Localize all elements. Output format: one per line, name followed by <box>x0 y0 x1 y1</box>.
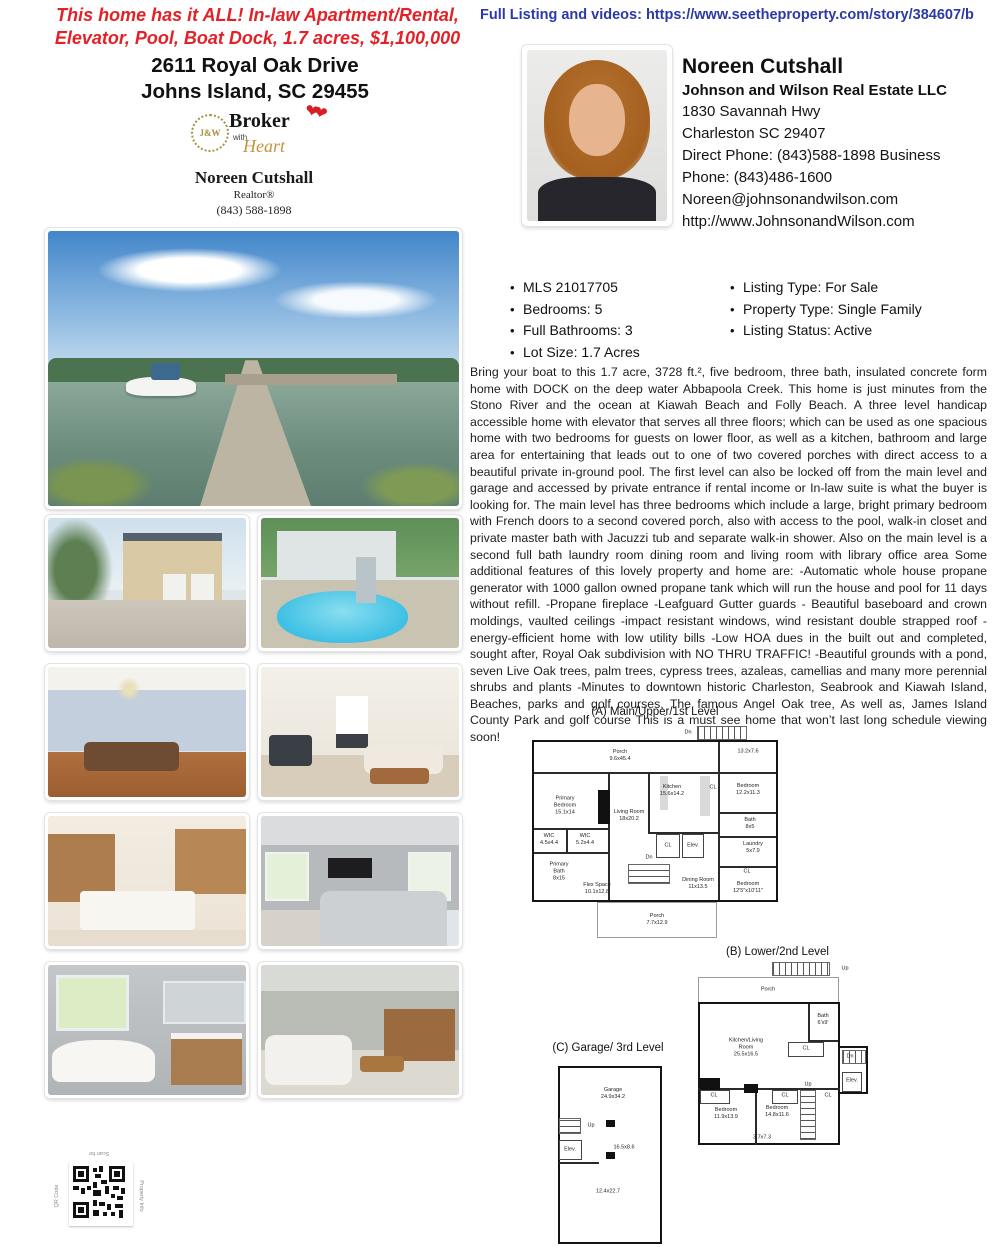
photo-frame <box>258 813 462 949</box>
photo-frame <box>45 962 249 1098</box>
island <box>80 891 195 930</box>
room-label: CL <box>710 1093 717 1100</box>
room-label: 16.5x8.6 <box>613 1145 634 1152</box>
room-label: Primary Bath 8x15 <box>550 862 569 883</box>
room-label: Dn <box>684 730 691 737</box>
mirror <box>163 981 246 1024</box>
agent-portrait <box>527 50 667 221</box>
garage-doors <box>163 574 214 600</box>
plan-wall <box>718 742 720 900</box>
room-label: CL <box>664 843 671 850</box>
room-label: Primary Bedroom 15.1x14 <box>554 796 576 817</box>
photo-frame <box>258 664 462 800</box>
bed <box>320 891 447 946</box>
floorplan-c-title: (C) Garage/ 3rd Level <box>538 1042 678 1054</box>
room-label: Porch 7.7x12.9 <box>646 913 667 927</box>
dock-platform <box>225 374 398 385</box>
stairs-icon <box>772 962 830 976</box>
plan-wall <box>648 774 650 832</box>
qr-caption-top: Scan for <box>89 1150 109 1156</box>
boat <box>126 377 196 396</box>
room-label: Kitchen 15.6x14.2 <box>660 784 684 798</box>
room-label: Bath 8x5 <box>744 817 755 831</box>
chimney-block <box>598 790 610 824</box>
photo-family-room <box>261 965 459 1095</box>
logo-agent-phone: (843) 588-1898 <box>185 203 323 218</box>
room-label: 12.4x22.7 <box>596 1189 620 1196</box>
plan-wall <box>718 812 776 814</box>
plan-wall <box>566 828 568 852</box>
detail-property-type: Property Type: Single Family <box>728 299 922 321</box>
broker-with-heart-logo: J&W Broker with Heart ❤❤ Noreen Cutshall… <box>185 106 323 226</box>
plan-wall <box>534 852 608 854</box>
room-label: Elev. <box>687 843 699 850</box>
logo-art: J&W Broker with Heart ❤❤ <box>185 106 323 164</box>
photo-bathroom <box>48 965 246 1095</box>
room-label: WIC 5.2x4.4 <box>576 833 594 847</box>
pool-slide <box>356 557 376 603</box>
window <box>265 852 309 900</box>
room-label: Laundry 5x7.9 <box>743 841 763 855</box>
address-line2: Johns Island, SC 29455 <box>45 79 465 105</box>
photo-living-room <box>261 667 459 797</box>
qr-block: Scan for QR Code Property Info <box>56 1148 142 1244</box>
stairs-icon <box>697 726 747 740</box>
room-label: Bedroom 12.2x11.3 <box>736 783 760 797</box>
details-list-left: MLS 21017705 Bedrooms: 5 Full Bathrooms:… <box>508 277 640 363</box>
photo-dining-room <box>48 667 246 797</box>
tv <box>328 858 372 879</box>
driveway <box>48 600 246 648</box>
stairs-icon <box>800 1090 816 1140</box>
room-label: Bath 6'x9' <box>817 1013 828 1027</box>
room-label: Living Room 18x20.2 <box>614 809 645 823</box>
room-label: Porch 9.6x45.4 <box>609 749 630 763</box>
detail-bedrooms: Bedrooms: 5 <box>508 299 640 321</box>
room-label: Dn <box>846 1054 853 1061</box>
cabinet-strip <box>700 776 710 816</box>
details-list-right: Listing Type: For Sale Property Type: Si… <box>728 277 922 342</box>
tagline-line1: This home has it ALL! In-law Apartment/R… <box>0 4 515 27</box>
ceiling <box>261 816 459 845</box>
window <box>56 975 129 1030</box>
plan-wall <box>534 772 776 774</box>
flyer-page: { "header": { "tagline_line1": "This hom… <box>0 0 1000 1250</box>
marsh-grass <box>360 462 459 506</box>
agent-email[interactable]: Noreen@johnsonandwilson.com <box>682 191 992 208</box>
face <box>569 84 625 156</box>
table <box>360 1056 404 1072</box>
stairs-icon <box>628 864 670 884</box>
detail-lot-size: Lot Size: 1.7 Acres <box>508 342 640 364</box>
plan-wall <box>808 1004 810 1040</box>
sectional-sofa <box>265 1035 352 1084</box>
room-label: Up <box>804 1082 811 1089</box>
agent-address2: Charleston SC 29407 <box>682 125 992 142</box>
kitchen-cabinets <box>384 1009 455 1061</box>
room-label: Bedroom 12'5"x10'11" <box>733 881 763 895</box>
jacuzzi-tub <box>52 1040 155 1082</box>
agent-address1: 1830 Savannah Hwy <box>682 103 992 120</box>
logo-heart-word: Heart <box>243 136 285 157</box>
agent-company: Johnson and Wilson Real Estate LLC <box>682 82 992 99</box>
photo-bedroom <box>261 816 459 946</box>
logo-broker-word: Broker <box>229 110 290 133</box>
laurel-monogram-icon: J&W <box>191 114 229 152</box>
qr-caption-left: QR Code <box>54 1185 60 1208</box>
room-label: Bedroom 14.8x11.6 <box>765 1105 789 1119</box>
room-label: 13.2x7.6 <box>737 749 758 756</box>
coffee-table <box>370 768 429 784</box>
ceiling <box>261 965 459 991</box>
room-label: WIC 4.5x4.4 <box>540 833 558 847</box>
photo-frame <box>45 515 249 651</box>
vanity <box>171 1033 242 1085</box>
address-line1: 2611 Royal Oak Drive <box>45 53 465 79</box>
cloud <box>274 281 438 320</box>
wood-cabinets <box>175 829 246 894</box>
room-label: Dn <box>645 855 652 862</box>
photo-frame-main <box>45 228 462 509</box>
agent-name: Noreen Cutshall <box>682 55 992 79</box>
floorplan-a-title: (A) Main/Upper/1st Level <box>530 706 780 718</box>
room-label: Elev. <box>564 1147 576 1154</box>
sofa-dark <box>269 735 313 766</box>
room-label: CL <box>802 1046 809 1053</box>
chandelier <box>117 677 141 700</box>
detail-listing-type: Listing Type: For Sale <box>728 277 922 299</box>
detail-listing-status: Listing Status: Active <box>728 320 922 342</box>
suit <box>538 177 656 221</box>
qr-code-icon <box>69 1162 133 1226</box>
room-label: 3.7x7.3 <box>753 1135 771 1142</box>
room-label: Bedroom 11.9x13.9 <box>714 1107 738 1121</box>
property-description: Bring your boat to this 1.7 acre, 3728 f… <box>470 364 987 746</box>
photo-dock-water <box>48 231 459 506</box>
dining-table <box>84 742 179 771</box>
ceiling <box>48 667 246 690</box>
agent-phone-business: Phone: (843)486-1600 <box>682 169 992 186</box>
floorplan-b-title: (B) Lower/2nd Level <box>690 946 865 958</box>
logo-agent-role: Realtor® <box>185 189 323 201</box>
post-block <box>606 1120 615 1127</box>
floor <box>261 910 320 946</box>
floor <box>48 930 246 946</box>
photo-pool <box>261 518 459 648</box>
agent-phone-direct: Direct Phone: (843)588-1898 Business <box>682 147 992 164</box>
plan-wall <box>718 866 776 868</box>
plan-wall <box>534 828 608 830</box>
room-label: CL <box>743 869 750 876</box>
stairs-icon <box>559 1118 581 1134</box>
agent-website[interactable]: http://www.JohnsonandWilson.com <box>682 213 992 230</box>
photo-frame <box>258 515 462 651</box>
wall-block <box>700 1078 720 1090</box>
tagline-line2: Elevator, Pool, Boat Dock, 1.7 acres, $1… <box>0 27 515 50</box>
photo-frame <box>45 813 249 949</box>
pool-water <box>277 591 408 643</box>
qr-code-svg <box>71 1164 127 1220</box>
qr-caption-right: Property Info <box>138 1180 144 1212</box>
plan-wall <box>559 1162 599 1164</box>
fireplace <box>336 696 368 748</box>
room-label: Elev. <box>846 1078 858 1085</box>
plan-wall <box>718 836 776 838</box>
agent-photo-frame <box>522 45 672 226</box>
room-label: Garage 24.9x34.2 <box>601 1087 625 1101</box>
photo-frame <box>258 962 462 1098</box>
room-label: Kitchen/Living Room 25.5x16.5 <box>729 1038 763 1059</box>
listing-url-link[interactable]: Full Listing and videos: https://www.see… <box>480 7 992 23</box>
detail-mls: MLS 21017705 <box>508 277 640 299</box>
property-address: 2611 Royal Oak Drive Johns Island, SC 29… <box>45 53 465 105</box>
room-label: Porch <box>761 987 775 994</box>
photo-house-exterior <box>48 518 246 648</box>
marsh-grass <box>48 457 155 507</box>
room-label: Flex Space 10.1x12.8 <box>583 882 611 896</box>
room-label: CL <box>781 1093 788 1100</box>
detail-bathrooms: Full Bathrooms: 3 <box>508 320 640 342</box>
room-label: Up <box>587 1123 594 1130</box>
cloud <box>97 248 282 292</box>
logo-agent-name: Noreen Cutshall <box>185 168 323 188</box>
room-label: CL <box>824 1093 831 1100</box>
tagline: This home has it ALL! In-law Apartment/R… <box>0 4 515 50</box>
house-porches <box>277 531 396 580</box>
room-label: Up <box>841 966 848 973</box>
photo-kitchen <box>48 816 246 946</box>
room-label: CL <box>709 785 716 792</box>
boat-canopy <box>151 363 180 380</box>
room-label: Dining Room 11x13.5 <box>682 877 714 891</box>
post-block <box>606 1152 615 1159</box>
wall-block <box>744 1084 758 1093</box>
photo-frame <box>45 664 249 800</box>
hearts-icon: ❤❤ <box>303 101 323 124</box>
